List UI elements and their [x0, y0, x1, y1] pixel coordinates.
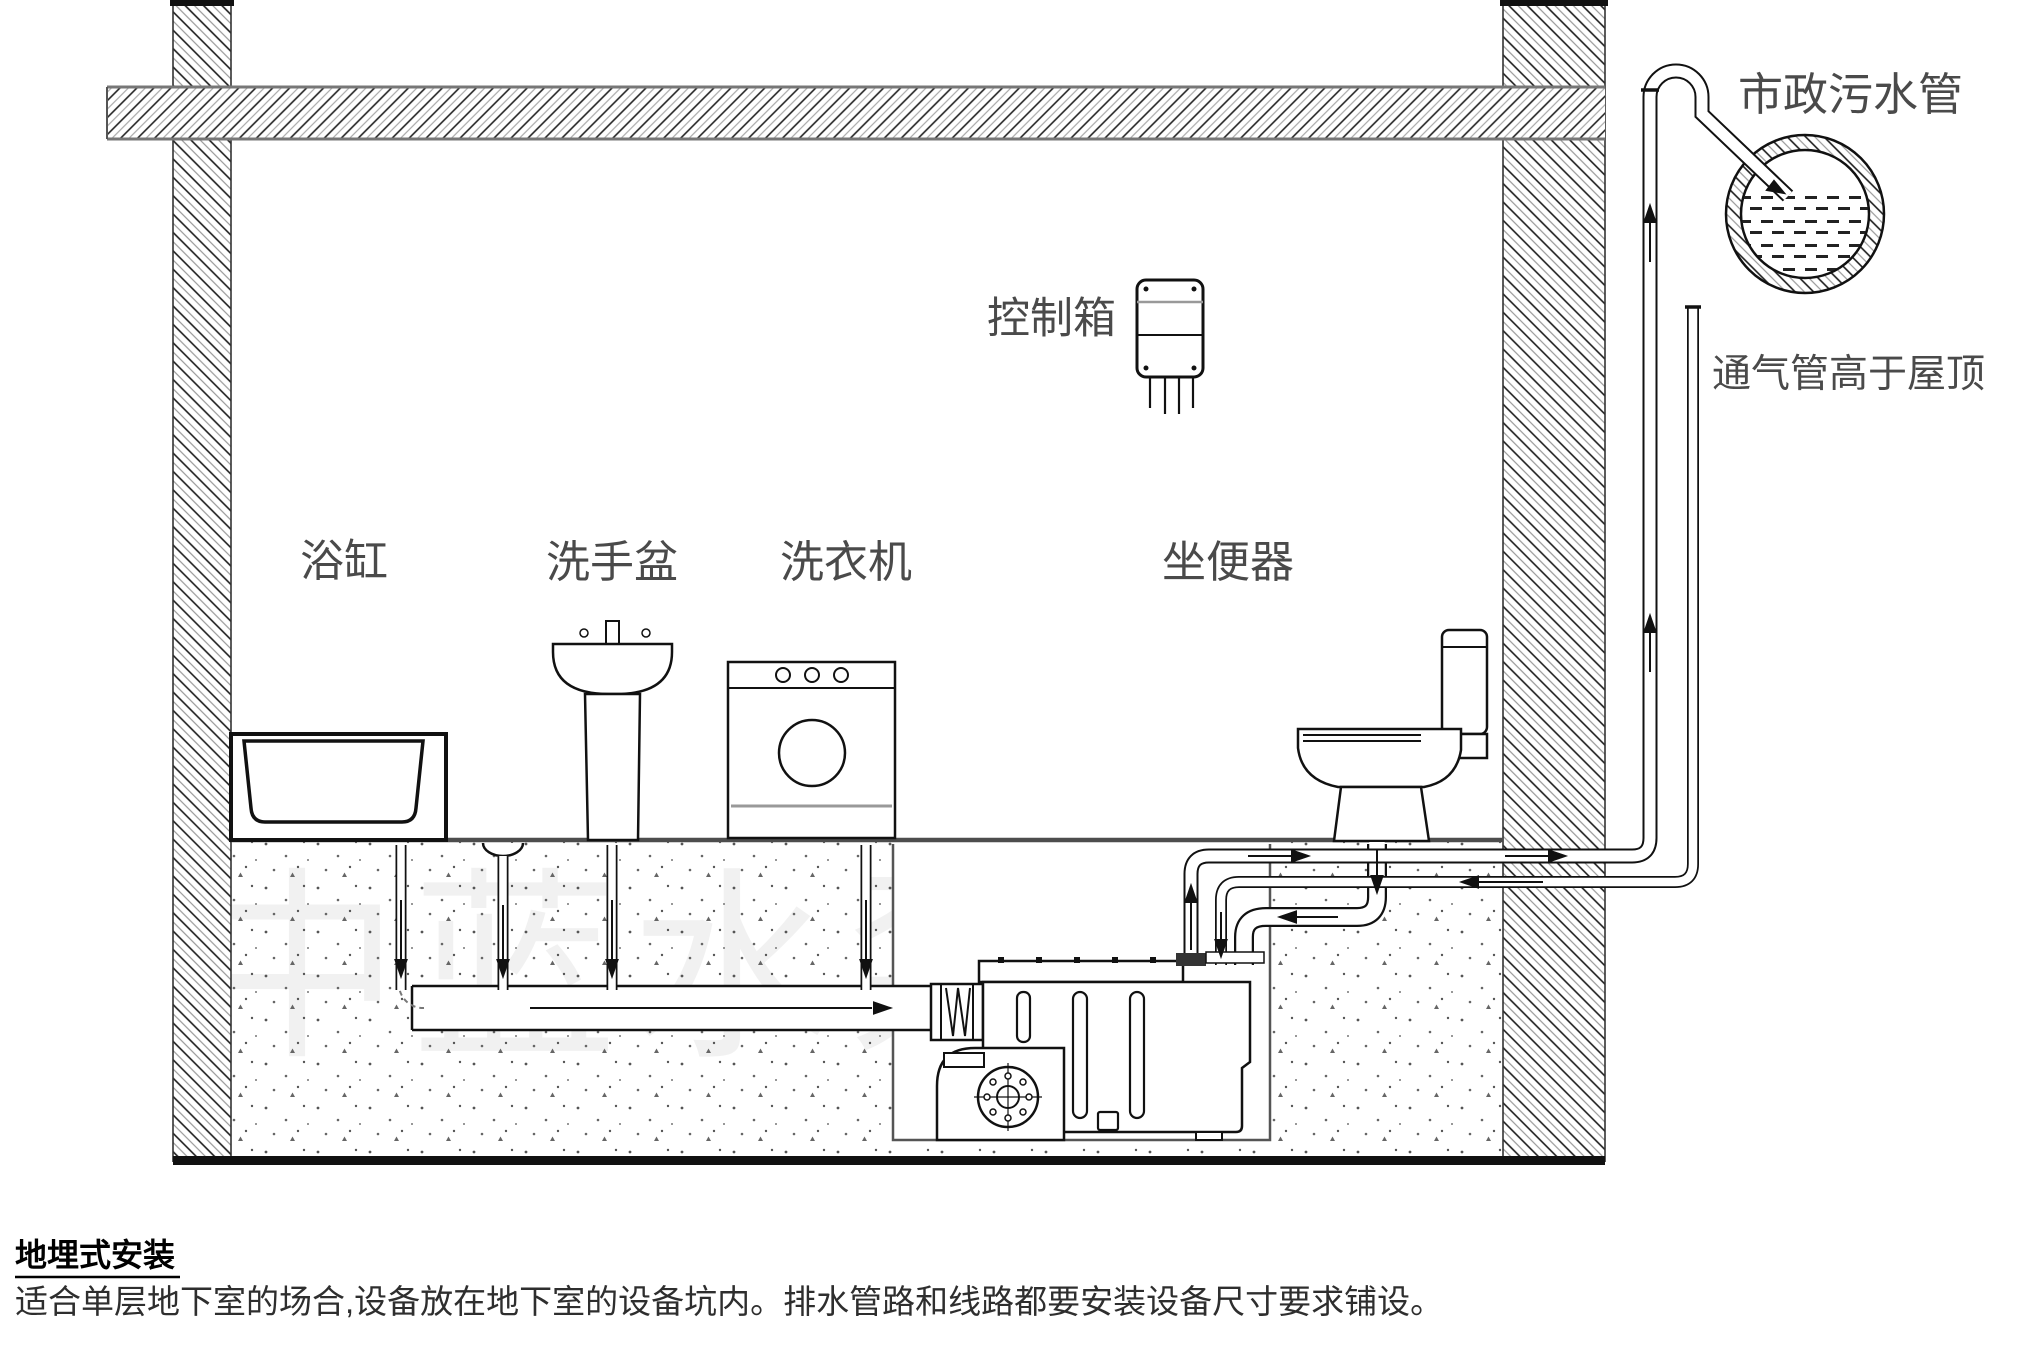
- bottom-slab: [173, 1156, 1605, 1165]
- drain-collector-pipe: [399, 982, 937, 1030]
- label-toilet: 坐便器: [1162, 537, 1294, 588]
- washbasin-figure: [553, 621, 672, 840]
- caption-body: 适合单层地下室的场合,设备放在地下室的设备坑内。排水管路和线路都要安装设备尺寸要…: [15, 1283, 1443, 1320]
- installation-diagram: 中蓝水泵: [0, 0, 2022, 1353]
- diagram-canvas: 中蓝水泵: [0, 0, 2022, 1353]
- label-washer: 洗衣机: [780, 537, 912, 588]
- basin-tap-dot-right: [642, 629, 650, 637]
- label-vent-note: 通气管高于屋顶: [1712, 352, 1985, 397]
- control-box-figure: [1137, 280, 1203, 414]
- inlet-mounting-plate: [1206, 952, 1264, 963]
- washing-machine-figure: [728, 662, 895, 838]
- basement-wall-right: [1500, 0, 1608, 1162]
- toilet-figure: [1298, 630, 1487, 841]
- label-basin: 洗手盆: [546, 537, 678, 588]
- basement-wall-left: [170, 0, 234, 1162]
- inlet-coupling: [931, 984, 983, 1040]
- ceiling-slab: [107, 87, 1605, 139]
- tank-lid: [979, 961, 1183, 982]
- caption-heading: 地埋式安装: [15, 1237, 175, 1273]
- caption: 地埋式安装 适合单层地下室的场合,设备放在地下室的设备坑内。排水管路和线路都要安…: [15, 1237, 1443, 1320]
- label-bathtub: 浴缸: [300, 536, 388, 587]
- discharge-base-collar: [1176, 953, 1206, 966]
- label-control-box: 控制箱: [987, 294, 1116, 344]
- bathtub-figure: [231, 734, 446, 840]
- label-municipal-sewer: 市政污水管: [1738, 68, 1963, 121]
- control-box-wires: [1150, 377, 1193, 414]
- basin-tap-dot-left: [580, 629, 588, 637]
- sewage-lifting-pump: [937, 957, 1250, 1140]
